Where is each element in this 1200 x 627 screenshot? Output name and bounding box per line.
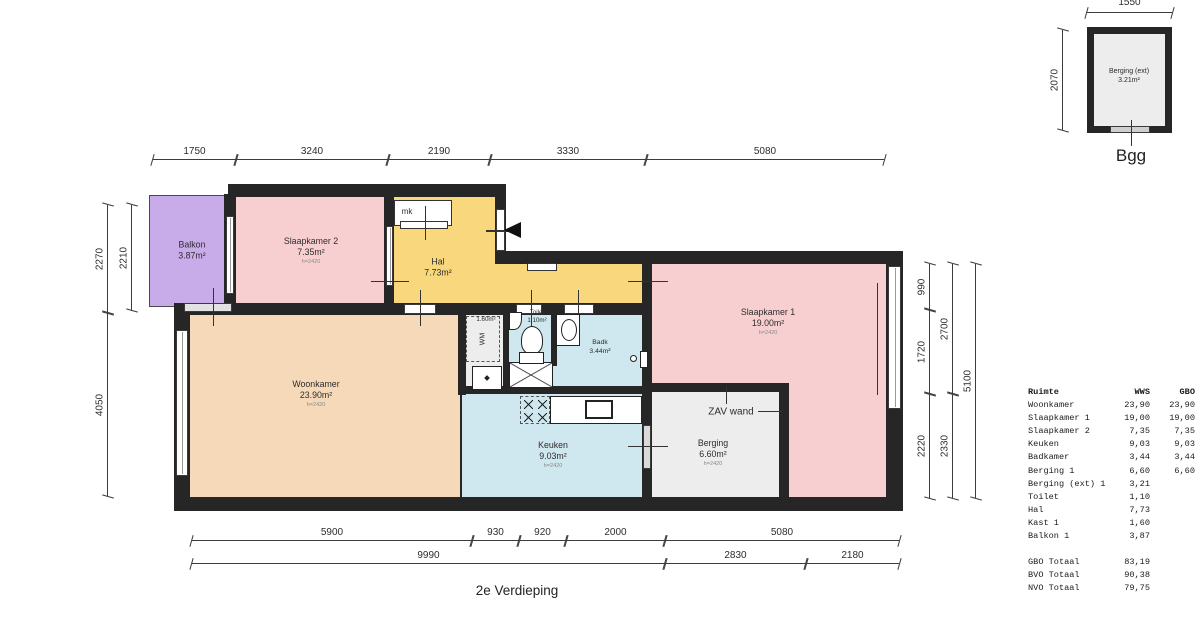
table-cell: 19,00: [1169, 413, 1195, 423]
dim-label: 1750: [181, 146, 207, 157]
bgg-leader: [1131, 120, 1132, 146]
dim-label: 1720: [917, 341, 928, 363]
kitchen-sink: [585, 400, 613, 419]
dim-label: 5080: [752, 146, 778, 157]
dim-label: 2190: [426, 146, 452, 157]
wall-bottom: [174, 497, 903, 511]
table-row: Toilet1,10: [1028, 492, 1195, 505]
dim-top-4: 5080: [646, 159, 884, 160]
table-cell: 3,44: [1174, 452, 1195, 462]
dim-bottom_row1-0: 5900: [192, 540, 472, 541]
dim-label: 2000: [602, 527, 628, 538]
radiator-knob: [630, 355, 637, 362]
label-hal: Hal7.73m²: [424, 257, 451, 280]
dim-right_col2-0: 2700: [952, 264, 953, 394]
dim-label: 2070: [1050, 69, 1061, 91]
tick-slaapkamer2-door: [371, 281, 409, 282]
cooktop-box: [520, 396, 550, 424]
table-row: Kast 11,60: [1028, 518, 1195, 531]
table-row: Keuken9,039,03: [1028, 439, 1195, 452]
table-cell: 3,21: [1129, 479, 1150, 489]
label-mk: mk: [402, 207, 413, 217]
table-cell: NVO Totaal: [1028, 583, 1080, 593]
dim-bottom_row1-1: 930: [472, 540, 519, 541]
table-cell: 9,03: [1174, 439, 1195, 449]
wall-woonkamer-kast: [458, 303, 466, 395]
tick-mk-door: [425, 206, 426, 240]
table-cell: Badkamer: [1028, 452, 1069, 462]
table-row: NVO Totaal79,75: [1028, 583, 1195, 596]
window-woonkamer-left: [176, 330, 188, 476]
dim-label: 1550: [1116, 0, 1142, 8]
entry-arrow-icon: [504, 222, 521, 238]
table-cell: 3,44: [1129, 452, 1150, 462]
dim-label: 5900: [319, 527, 345, 538]
table-cell: 19,00: [1124, 413, 1150, 423]
dim-top-0: 1750: [153, 159, 236, 160]
toilet-bowl: [521, 326, 543, 354]
door-slaapkamer2: [386, 226, 393, 286]
table-row: Badkamer3,443,44: [1028, 452, 1195, 465]
dim-top-1: 3240: [236, 159, 388, 160]
floorplan-canvas: WM Balkon3.87m² Slaapkamer 27.35m² h=242…: [0, 0, 1200, 627]
table-cell: Balkon 1: [1028, 531, 1069, 541]
dim-bottom_row1-3: 2000: [566, 540, 665, 541]
dim-top-2: 2190: [388, 159, 490, 160]
zav-leader-up: [726, 386, 727, 404]
dim-label: 2330: [940, 435, 951, 457]
table-row: Woonkamer23,9023,90: [1028, 400, 1195, 413]
dim-bottom_row2-1: 2830: [665, 563, 806, 564]
table-cell: 7,73: [1129, 505, 1150, 515]
table-cell: 1,60: [1129, 518, 1150, 528]
table-cell: 23,90: [1124, 400, 1150, 410]
dim-right_col1-1: 1720: [929, 310, 930, 394]
dim-label: 3330: [555, 146, 581, 157]
dim-left_inner-0: 2210: [131, 205, 132, 310]
table-cell: 79,75: [1124, 583, 1150, 593]
dim-label: 2270: [95, 248, 106, 270]
table-row: Hal7,73: [1028, 505, 1195, 518]
dim-bottom_row2-2: 2180: [806, 563, 899, 564]
table-cell: Ruimte: [1028, 387, 1059, 397]
dim-top-3: 3330: [490, 159, 646, 160]
bgg-door: [1110, 126, 1150, 133]
slaapkamer1-window-line: [877, 283, 878, 395]
label-slaapkamer2: Slaapkamer 27.35m² h=2420: [284, 236, 338, 266]
wall-berging-top: [648, 383, 789, 392]
tick-balkon-door: [213, 288, 214, 326]
dim-label: 9990: [415, 550, 441, 561]
table-cell: WWS: [1135, 387, 1150, 397]
balkon-railing: [184, 303, 232, 312]
table-row: Berging (ext) 13,21: [1028, 479, 1195, 492]
dim-label: 5100: [963, 370, 974, 392]
table-row: Berging 16,606,60: [1028, 466, 1195, 479]
table-spacer: [1028, 544, 1195, 557]
dim-label: 2700: [940, 318, 951, 340]
label-slaapkamer1: Slaapkamer 119.00m² h=2420: [741, 307, 795, 337]
table-cell: 6,60: [1129, 466, 1150, 476]
dim-bottom_row1-4: 5080: [665, 540, 899, 541]
dim-label: 2210: [119, 246, 130, 268]
badkamer-basin-bowl: [561, 319, 577, 341]
label-kast: K1.60m²: [476, 308, 495, 324]
window-slaapkamer1-right: [888, 266, 901, 409]
tick-slaapkamer1-door: [628, 281, 668, 282]
zav-leader-right: [758, 411, 782, 412]
table-cell: 3,87: [1129, 531, 1150, 541]
washing-machine-label: WM: [480, 333, 487, 345]
door-leaf-entry: [527, 263, 557, 271]
table-cell: 6,60: [1174, 466, 1195, 476]
toilet-tank: [519, 352, 544, 364]
label-berging: Berging6.60m² h=2420: [698, 438, 728, 468]
area-table: RuimteWWSGBOWoonkamer23,9023,90Slaapkame…: [1028, 387, 1195, 597]
table-cell: 23,90: [1169, 400, 1195, 410]
table-cell: Kast 1: [1028, 518, 1059, 528]
table-cell: Keuken: [1028, 439, 1059, 449]
bgg-caption: Bgg: [1116, 146, 1146, 166]
table-row: RuimteWWSGBO: [1028, 387, 1195, 400]
table-cell: 1,10: [1129, 492, 1150, 502]
wall-berging-right: [779, 383, 789, 501]
dim-label: 2180: [839, 550, 865, 561]
dim-right_col3-0: 5100: [975, 264, 976, 498]
label-balkon: Balkon3.87m²: [178, 240, 205, 263]
table-cell: Berging 1: [1028, 466, 1074, 476]
dim-right_col1-0: 990: [929, 264, 930, 310]
label-keuken: Keuken9.03m² h=2420: [538, 440, 568, 470]
table-cell: GBO Totaal: [1028, 557, 1080, 567]
dim-label: 990: [917, 279, 928, 296]
dim-label: 2220: [917, 435, 928, 457]
table-cell: 9,03: [1129, 439, 1150, 449]
door-opening-badkamer: [564, 304, 594, 314]
label-woonkamer: Woonkamer23.90m² h=2420: [292, 379, 339, 409]
dim-bottom_row2-0: 9990: [192, 563, 665, 564]
label-zav-wand: ZAV wand: [708, 406, 753, 419]
door-keuken-berging: [643, 425, 651, 469]
table-cell: Slaapkamer 1: [1028, 413, 1090, 423]
wall-badkamer-slaapkamer1: [642, 259, 652, 395]
dim-label: 4050: [95, 393, 106, 415]
table-row: GBO Totaal83,19: [1028, 557, 1195, 570]
dim-inset-left_dim: 2070: [1062, 30, 1063, 130]
dim-label: 930: [485, 527, 506, 538]
label-berging-ext: Berging (ext)3.21m²: [1109, 67, 1149, 85]
table-cell: Toilet: [1028, 492, 1059, 502]
label-badkamer: Badk3.44m²: [589, 339, 610, 357]
door-balkon: [226, 216, 234, 294]
table-cell: 90,38: [1124, 570, 1150, 580]
table-cell: Hal: [1028, 505, 1043, 515]
table-cell: Woonkamer: [1028, 400, 1074, 410]
table-cell: BVO Totaal: [1028, 570, 1080, 580]
tick-hal-woonkamer: [420, 290, 421, 326]
dim-inset-top_dim: 1550: [1087, 12, 1172, 13]
wall-woonkamer-keuken-line: [460, 394, 462, 498]
table-row: Balkon 13,87: [1028, 531, 1195, 544]
floor-title: 2e Verdieping: [476, 583, 559, 598]
dim-right_col1-2: 2220: [929, 394, 930, 498]
table-row: BVO Totaal90,38: [1028, 570, 1195, 583]
shaft-box: [509, 362, 553, 388]
dim-label: 3240: [299, 146, 325, 157]
dim-label: 920: [532, 527, 553, 538]
table-cell: 7,35: [1129, 426, 1150, 436]
dim-bottom_row1-2: 920: [519, 540, 566, 541]
radiator-valve: [640, 351, 648, 368]
table-cell: 83,19: [1124, 557, 1150, 567]
table-cell: Berging (ext) 1: [1028, 479, 1105, 489]
table-row: Slaapkamer 119,0019,00: [1028, 413, 1195, 426]
wall-top-left: [228, 184, 506, 197]
dim-left_outer-0: 2270: [107, 205, 108, 313]
table-cell: Slaapkamer 2: [1028, 426, 1090, 436]
tick-berging-door: [628, 446, 668, 447]
table-cell: GBO: [1180, 387, 1195, 397]
table-row: Slaapkamer 27,357,35: [1028, 426, 1195, 439]
dim-right_col2-1: 2330: [952, 394, 953, 498]
door-leaf-mk: [400, 221, 448, 229]
dim-left_outer-1: 4050: [107, 313, 108, 496]
table-cell: 7,35: [1174, 426, 1195, 436]
dim-label: 5080: [769, 527, 795, 538]
label-toilet: Toilet1.10m²: [527, 309, 546, 325]
dim-label: 2830: [722, 550, 748, 561]
